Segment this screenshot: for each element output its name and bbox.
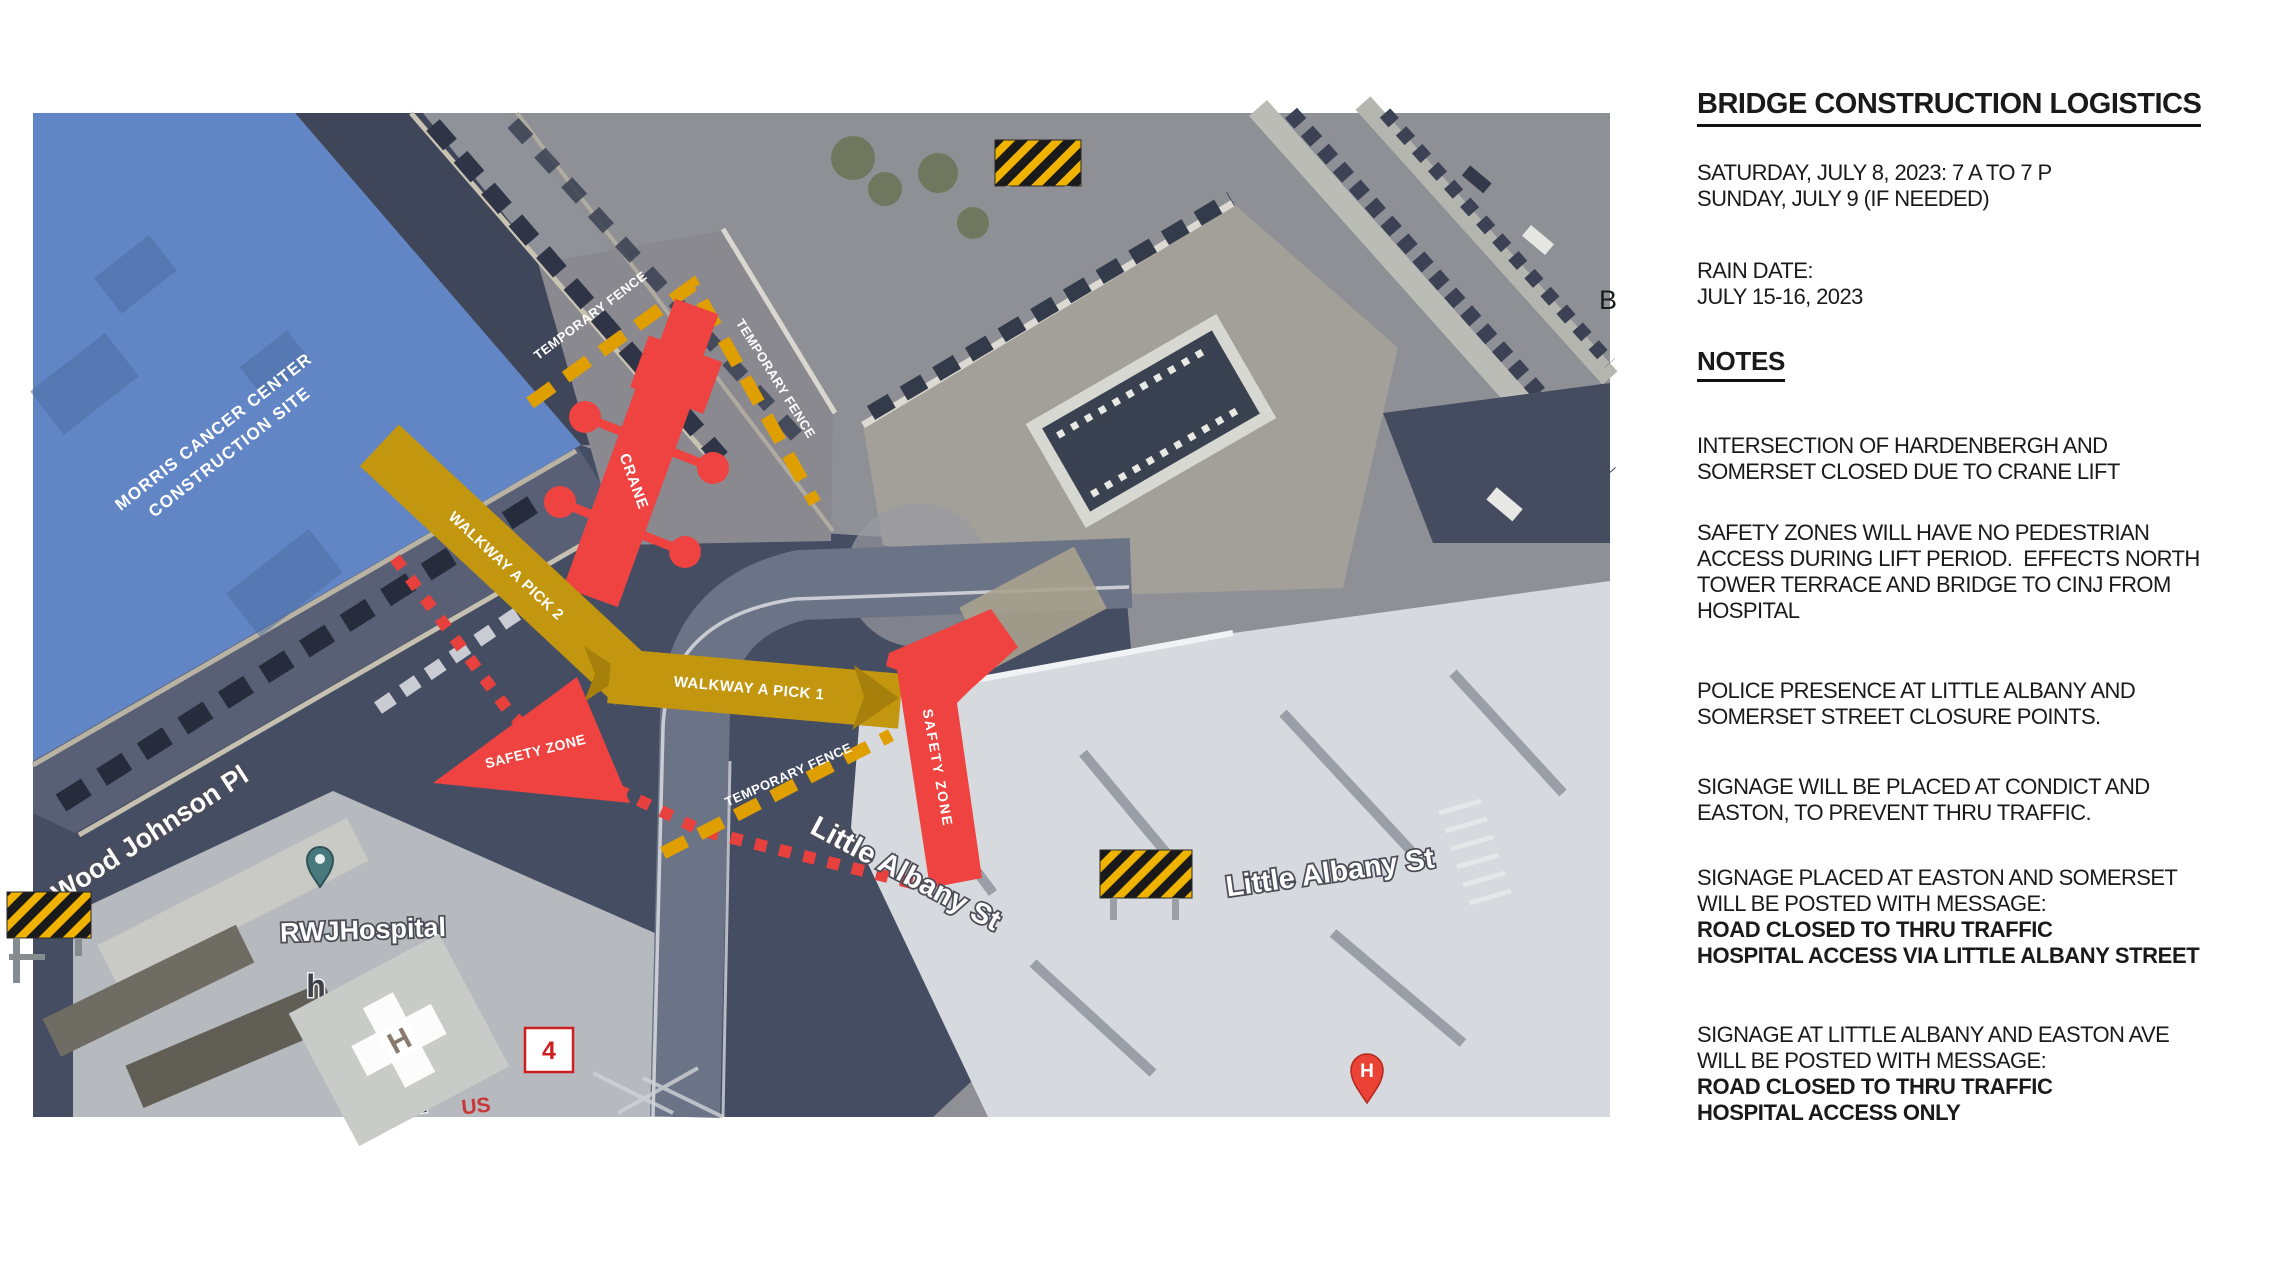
note-5: SIGNAGE PLACED AT EASTON AND SOMERSET WI…	[1697, 865, 2199, 969]
note-line-bold: HOSPITAL ACCESS VIA LITTLE ALBANY STREET	[1697, 943, 2199, 969]
rain-date-value: JULY 15-16, 2023	[1697, 284, 1863, 310]
note-line: SOMERSET STREET CLOSURE POINTS.	[1697, 704, 2135, 730]
panel-title: BRIDGE CONSTRUCTION LOGISTICS	[1697, 88, 2201, 127]
note-2: SAFETY ZONES WILL HAVE NO PEDESTRIAN ACC…	[1697, 520, 2200, 624]
note-3: POLICE PRESENCE AT LITTLE ALBANY AND SOM…	[1697, 678, 2135, 730]
edge-clipped-glyph: B	[1599, 285, 1617, 315]
note-line: SIGNAGE AT LITTLE ALBANY AND EASTON AVE	[1697, 1022, 2169, 1048]
note-6: SIGNAGE AT LITTLE ALBANY AND EASTON AVE …	[1697, 1022, 2169, 1126]
marker-4: 4	[525, 1028, 573, 1072]
rain-date-block: RAIN DATE: JULY 15-16, 2023	[1697, 258, 1863, 310]
note-line: INTERSECTION OF HARDENBERGH AND	[1697, 433, 2120, 459]
note-1: INTERSECTION OF HARDENBERGH AND SOMERSET…	[1697, 433, 2120, 485]
place-label-rwj-hospital: RWJHospital	[280, 912, 447, 948]
note-line-bold: ROAD CLOSED TO THRU TRAFFIC	[1697, 1074, 2169, 1100]
note-line: SIGNAGE WILL BE PLACED AT CONDICT AND	[1697, 774, 2150, 800]
note-line: WILL BE POSTED WITH MESSAGE:	[1697, 1048, 2169, 1074]
note-line: WILL BE POSTED WITH MESSAGE:	[1697, 891, 2199, 917]
marker-4-number: 4	[542, 1037, 556, 1065]
note-line-bold: HOSPITAL ACCESS ONLY	[1697, 1100, 2169, 1126]
note-line: EASTON, TO PREVENT THRU TRAFFIC.	[1697, 800, 2150, 826]
us-label: US	[460, 1094, 491, 1120]
hospital-pin-letter: H	[1360, 1061, 1374, 1082]
schedule-line: SUNDAY, JULY 9 (IF NEEDED)	[1697, 186, 2052, 212]
construction-logistics-map: MORRIS CANCER CENTER CONSTRUCTION SITE T…	[33, 113, 1610, 1117]
note-line: TOWER TERRACE AND BRIDGE TO CINJ FROM	[1697, 572, 2200, 598]
rain-date-label: RAIN DATE:	[1697, 258, 1863, 284]
note-4: SIGNAGE WILL BE PLACED AT CONDICT AND EA…	[1697, 774, 2150, 826]
note-line: HOSPITAL	[1697, 598, 2200, 624]
schedule-block: SATURDAY, JULY 8, 2023: 7 A TO 7 P SUNDA…	[1697, 160, 2052, 212]
schedule-line: SATURDAY, JULY 8, 2023: 7 A TO 7 P	[1697, 160, 2052, 186]
note-line: SIGNAGE PLACED AT EASTON AND SOMERSET	[1697, 865, 2199, 891]
note-line: SAFETY ZONES WILL HAVE NO PEDESTRIAN	[1697, 520, 2200, 546]
note-line: SOMERSET CLOSED DUE TO CRANE LIFT	[1697, 459, 2120, 485]
note-line: POLICE PRESENCE AT LITTLE ALBANY AND	[1697, 678, 2135, 704]
note-line-bold: ROAD CLOSED TO THRU TRAFFIC	[1697, 917, 2199, 943]
info-panel: BRIDGE CONSTRUCTION LOGISTICS SATURDAY, …	[1697, 88, 2237, 1208]
notes-heading: NOTES	[1697, 346, 1785, 382]
note-line: ACCESS DURING LIFT PERIOD. EFFECTS NORTH	[1697, 546, 2200, 572]
